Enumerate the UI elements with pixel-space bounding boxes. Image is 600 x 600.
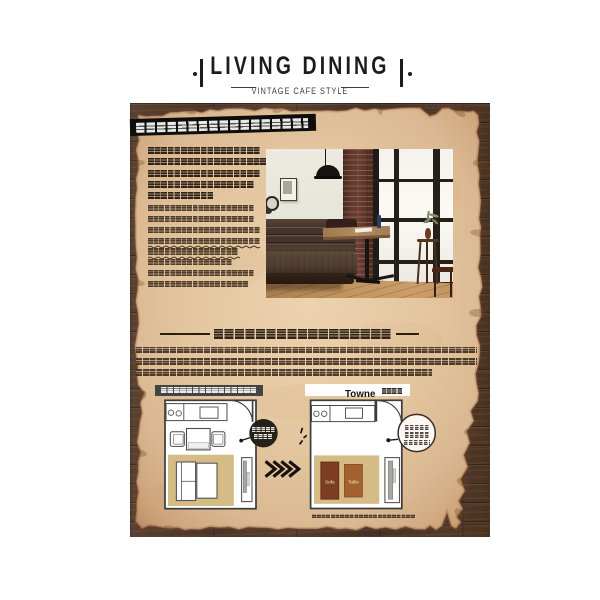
svg-text:Sofa: Sofa <box>325 480 335 485</box>
svg-text:Table: Table <box>348 480 359 485</box>
